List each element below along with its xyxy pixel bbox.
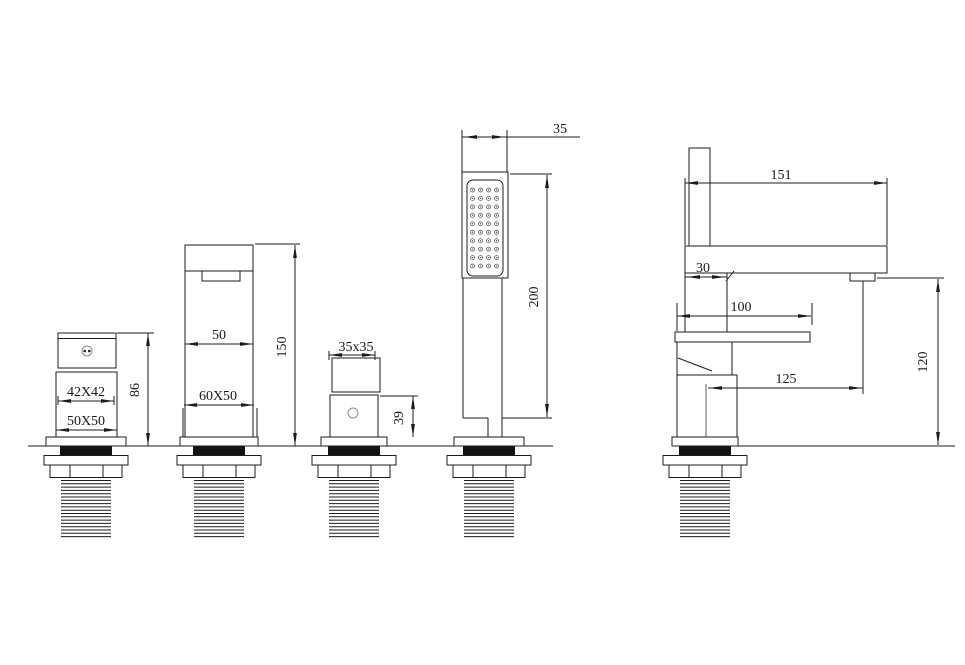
mount-assembly xyxy=(663,437,747,537)
washer-plate xyxy=(177,456,261,466)
dim-label-diverter-width: 42X42 xyxy=(67,385,105,400)
spray-nozzle-center xyxy=(496,248,497,249)
spray-nozzle-center xyxy=(496,215,497,216)
rubber-gasket xyxy=(463,447,515,456)
lock-nut xyxy=(669,465,741,478)
mount-assembly xyxy=(44,437,128,537)
dim-label-diverter-base: 50X50 xyxy=(67,414,105,429)
spray-nozzle-center xyxy=(488,232,489,233)
shower-head xyxy=(462,172,508,278)
spray-nozzle-center xyxy=(496,265,497,266)
spray-nozzle-center xyxy=(496,206,497,207)
spray-nozzle-center xyxy=(472,232,473,233)
dim-handle-plan: 35x35 xyxy=(329,340,375,360)
dim-handle-height: 39 xyxy=(380,396,418,437)
dim-label-side-length: 151 xyxy=(771,168,792,183)
mount-assembly xyxy=(312,437,396,537)
side-spout-body xyxy=(685,246,887,273)
dim-side-reach: 125 xyxy=(708,281,863,394)
spray-nozzle-center xyxy=(488,206,489,207)
spray-nozzle-center xyxy=(496,257,497,258)
lock-nut xyxy=(318,465,390,478)
dim-label-side-outlet-height: 120 xyxy=(916,352,931,373)
spray-nozzle-center xyxy=(472,189,473,190)
bath-faucet-dimension-drawing: 42X42 50X50 86 50 60X50 150 35x3 xyxy=(0,0,965,665)
dim-label-shower-width: 35 xyxy=(553,122,567,137)
dim-diverter-height: 86 xyxy=(117,333,154,446)
lock-nut xyxy=(50,465,122,478)
rubber-gasket xyxy=(193,447,245,456)
dim-label-shower-height: 200 xyxy=(527,287,542,308)
dim-shower-width: 35 xyxy=(462,122,580,172)
spray-nozzle-center xyxy=(488,240,489,241)
dim-side-length: 151 xyxy=(685,168,887,245)
spray-nozzle-center xyxy=(488,265,489,266)
side-lever xyxy=(675,332,810,342)
washer-plate xyxy=(312,456,396,466)
spray-nozzle-center xyxy=(480,265,481,266)
mount-assembly xyxy=(447,437,531,537)
side-outlet xyxy=(850,273,875,281)
side-valve-body xyxy=(677,375,737,437)
side-lowerneck-diagonal xyxy=(678,358,712,371)
escutcheon-plate xyxy=(672,437,738,446)
spray-nozzle-center xyxy=(496,198,497,199)
dim-label-diverter-height: 86 xyxy=(128,383,143,397)
washer-plate xyxy=(44,456,128,466)
spray-nozzle-center xyxy=(488,257,489,258)
spray-nozzle-center xyxy=(472,265,473,266)
spray-nozzle-center xyxy=(472,215,473,216)
spray-nozzle-center xyxy=(496,189,497,190)
spray-nozzle-center xyxy=(496,232,497,233)
mounting-hardware xyxy=(44,437,747,537)
spray-nozzle-center xyxy=(480,232,481,233)
dim-spout-height: 150 xyxy=(255,244,300,446)
dim-label-side-lever: 100 xyxy=(731,300,752,315)
dim-spout-base: 60X50 xyxy=(184,389,254,405)
dim-shower-height: 200 xyxy=(502,174,552,418)
rubber-gasket xyxy=(328,447,380,456)
threaded-shank xyxy=(194,481,244,537)
spray-nozzle-center xyxy=(488,215,489,216)
drawing-sheet: 42X42 50X50 86 50 60X50 150 35x3 xyxy=(0,0,965,665)
dim-spout-width: 50 xyxy=(185,328,253,344)
diverter-button-dot xyxy=(83,350,86,353)
deck-and-bodies xyxy=(28,148,955,537)
dimensions: 42X42 50X50 86 50 60X50 150 35x3 xyxy=(56,122,944,446)
dim-label-spout-width: 50 xyxy=(212,328,226,343)
dim-label-spout-base: 60X50 xyxy=(199,389,237,404)
dim-label-side-offset: 30 xyxy=(696,261,710,276)
spray-nozzle-center xyxy=(472,248,473,249)
rubber-gasket xyxy=(60,447,112,456)
dim-side-outlet-height: 120 xyxy=(877,278,944,445)
handle-plan-square xyxy=(332,358,380,392)
handle-screw xyxy=(348,408,358,418)
spray-nozzle-center xyxy=(480,223,481,224)
side-lever-knob xyxy=(689,148,710,246)
spray-nozzle-center xyxy=(472,198,473,199)
spray-nozzle-center xyxy=(472,257,473,258)
washer-plate xyxy=(447,456,531,466)
spray-nozzle-center xyxy=(472,223,473,224)
spray-nozzle-grid xyxy=(471,188,499,268)
dim-label-handle-plan: 35x35 xyxy=(339,340,374,355)
spray-nozzle-center xyxy=(480,248,481,249)
dim-diverter-base: 50X50 xyxy=(56,414,117,430)
spray-nozzle-center xyxy=(472,206,473,207)
handle-front-square xyxy=(330,395,378,437)
spray-nozzle-center xyxy=(488,189,489,190)
lock-nut xyxy=(453,465,525,478)
spray-nozzle-center xyxy=(480,189,481,190)
spray-nozzle-center xyxy=(496,240,497,241)
handshower-front-view xyxy=(462,172,508,437)
dim-diverter-width: 42X42 xyxy=(58,385,114,405)
handle-view xyxy=(330,358,380,437)
dim-label-side-reach: 125 xyxy=(776,372,797,387)
spray-nozzle-center xyxy=(496,223,497,224)
dim-label-handle-height: 39 xyxy=(392,411,407,425)
threaded-shank xyxy=(329,481,379,537)
threaded-shank xyxy=(680,481,730,537)
spray-nozzle-center xyxy=(488,248,489,249)
spout-aerator-slot xyxy=(202,271,240,281)
side-view xyxy=(675,148,887,437)
spray-nozzle-center xyxy=(488,223,489,224)
washer-plate xyxy=(663,456,747,466)
spray-nozzle-center xyxy=(480,215,481,216)
dim-label-spout-height: 150 xyxy=(275,337,290,358)
spray-nozzle-center xyxy=(480,198,481,199)
mount-assembly xyxy=(177,437,261,537)
diverter-button-dot xyxy=(88,350,91,353)
escutcheon-plate xyxy=(180,437,258,446)
spray-nozzle-center xyxy=(480,257,481,258)
escutcheon-plate xyxy=(46,437,126,446)
escutcheon-plate xyxy=(321,437,387,446)
threaded-shank xyxy=(464,481,514,537)
escutcheon-plate xyxy=(454,437,524,446)
dim-side-lever: 100 xyxy=(677,300,812,331)
shower-faceplate xyxy=(467,180,503,276)
spray-nozzle-center xyxy=(488,198,489,199)
spray-nozzle-center xyxy=(480,240,481,241)
spray-nozzle-center xyxy=(480,206,481,207)
rubber-gasket xyxy=(679,447,731,456)
spray-nozzle-center xyxy=(472,240,473,241)
threaded-shank xyxy=(61,481,111,537)
lock-nut xyxy=(183,465,255,478)
